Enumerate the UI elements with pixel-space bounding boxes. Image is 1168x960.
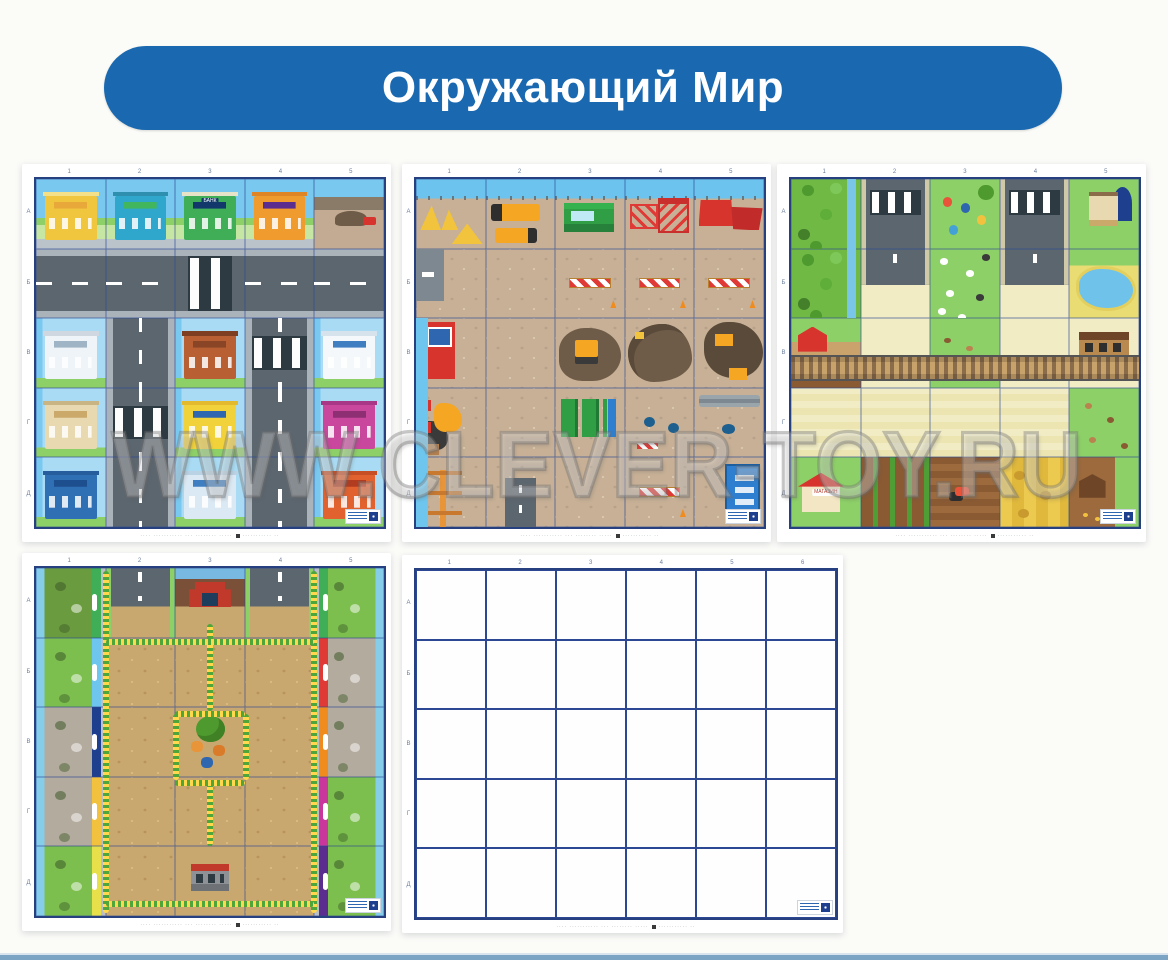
mat-cell (175, 388, 245, 458)
mat-cell: МАГАЗИН (791, 457, 861, 527)
column-label: 2 (518, 169, 521, 175)
product-sheet: Окружающий Мир 12345АБВГДБАНК···· ······… (0, 0, 1168, 960)
row-label: В (26, 739, 30, 745)
mat-cell (555, 249, 625, 319)
mat-cell (245, 249, 315, 319)
mat-cell (416, 570, 486, 640)
qr-code-icon (821, 903, 830, 912)
column-label: 2 (138, 558, 141, 564)
zoo-path (243, 714, 249, 780)
mat-cell (314, 707, 384, 777)
mat-cell (694, 388, 764, 458)
row-label: Г (782, 420, 785, 426)
brand-logo (1100, 509, 1136, 524)
mat-cell (1000, 179, 1070, 249)
mat-cell (1069, 249, 1139, 319)
mat-cell (791, 388, 861, 458)
mat-cell (36, 249, 106, 319)
mat-cell (314, 318, 384, 388)
column-label: 5 (729, 169, 732, 175)
mat-cell (416, 179, 486, 249)
column-labels: 123456 (414, 558, 838, 568)
playmat-village: 12345АБВГДМАГАЗИН···· ··········· ··· ··… (777, 164, 1146, 542)
mat-cell (625, 249, 695, 319)
caption-text: ··········· ·· (243, 533, 280, 539)
playmat-blank-grid: 123456АБВГД···· ··········· ··· ········… (402, 555, 843, 933)
row-label: Д (406, 882, 410, 888)
column-labels: 12345 (789, 167, 1141, 177)
mat-cell (696, 779, 766, 849)
row-label: Д (26, 880, 30, 886)
row-label: А (406, 600, 410, 606)
column-labels: 12345 (34, 556, 386, 566)
mat-cell (556, 640, 626, 710)
mat-cell (175, 457, 245, 527)
mat-cell (314, 179, 384, 249)
logo-text-lines (1103, 512, 1122, 521)
mat-cell (245, 568, 315, 638)
column-label: 2 (518, 560, 521, 566)
playmat-city: 12345АБВГДБАНК···· ··········· ··· ·····… (22, 164, 391, 542)
mat-cell (694, 179, 764, 249)
mat-cell (696, 640, 766, 710)
caption-text: ···· ··········· ··· ········ ····· (895, 533, 987, 539)
row-label: Г (407, 420, 410, 426)
mat-cell (416, 709, 486, 779)
bottom-strip (0, 953, 1168, 960)
mat-caption: ···· ··········· ··· ········ ··········… (34, 918, 386, 931)
mat-caption: ···· ··········· ··· ········ ··········… (414, 920, 838, 933)
column-label: 6 (801, 560, 804, 566)
mat-cell (791, 249, 861, 319)
mat-cell (766, 570, 836, 640)
brand-logo (725, 509, 761, 524)
mat-cell (245, 457, 315, 527)
building-sign: МАГАЗИН (812, 489, 839, 496)
mat-cell (245, 318, 315, 388)
qr-code-icon (369, 512, 378, 521)
logo-text-lines (728, 512, 747, 521)
mat-cell (556, 570, 626, 640)
mat-cell (694, 318, 764, 388)
qr-icon (236, 534, 240, 538)
row-label: А (781, 209, 785, 215)
mat-cell (106, 638, 176, 708)
mat-cell (1069, 179, 1139, 249)
mat-cell (36, 638, 106, 708)
mat-cell (36, 568, 106, 638)
mat-cell (625, 388, 695, 458)
mat-cell (106, 179, 176, 249)
mat-cell (861, 179, 931, 249)
mat-cell (106, 249, 176, 319)
mat-cell (106, 388, 176, 458)
mat-cell (486, 640, 556, 710)
page-title: Окружающий Мир (382, 63, 784, 113)
row-label: В (26, 350, 30, 356)
mat-cell (556, 779, 626, 849)
mat-cell (930, 388, 1000, 458)
row-labels: АБВГД (403, 568, 414, 920)
column-label: 3 (588, 169, 591, 175)
logo-text-lines (348, 512, 367, 521)
mat-cell (626, 779, 696, 849)
mat-cell (625, 179, 695, 249)
brand-logo (345, 509, 381, 524)
mat-cell (861, 457, 931, 527)
row-labels: АБВГД (23, 177, 34, 529)
mat-field (414, 568, 838, 920)
column-label: 5 (349, 558, 352, 564)
mat-cell (861, 388, 931, 458)
caption-text: ··········· ·· (998, 533, 1035, 539)
mat-field: БАНК (34, 177, 386, 529)
mat-cell (555, 388, 625, 458)
row-labels: АБВГД (403, 177, 414, 529)
qr-icon (616, 534, 620, 538)
zoo-path (173, 714, 179, 780)
mat-cell (1000, 249, 1070, 319)
title-banner: Окружающий Мир (104, 46, 1062, 130)
mat-field (414, 177, 766, 529)
brand-logo (797, 900, 833, 915)
railroad-track (791, 355, 1139, 381)
mat-cell (314, 638, 384, 708)
zoo-path (207, 784, 213, 847)
row-label: Б (27, 669, 31, 675)
mat-cell (861, 249, 931, 319)
mat-cell (555, 457, 625, 527)
mat-cell (625, 318, 695, 388)
column-label: 1 (448, 560, 451, 566)
mat-cell (555, 179, 625, 249)
mat-cell (245, 777, 315, 847)
column-labels: 12345 (34, 167, 386, 177)
mat-cell (696, 848, 766, 918)
mat-cell (314, 249, 384, 319)
qr-code-icon (1124, 512, 1133, 521)
column-label: 5 (349, 169, 352, 175)
column-label: 3 (963, 169, 966, 175)
mat-cell (486, 179, 556, 249)
row-labels: АБВГД (778, 177, 789, 529)
mat-cell (245, 388, 315, 458)
mat-cell (36, 707, 106, 777)
mat-cell (486, 388, 556, 458)
mat-cell (314, 777, 384, 847)
zoo-path (207, 624, 213, 711)
row-label: Д (26, 491, 30, 497)
mat-cell (930, 249, 1000, 319)
mat-cell (416, 249, 486, 319)
mat-cell (1000, 388, 1070, 458)
mat-cell (626, 709, 696, 779)
qr-icon (991, 534, 995, 538)
logo-text-lines (800, 903, 819, 912)
mat-cell (626, 640, 696, 710)
mat-cell (626, 848, 696, 918)
row-label: Б (782, 280, 786, 286)
mat-cell (245, 707, 315, 777)
row-label: В (781, 350, 785, 356)
mat-cell (175, 249, 245, 319)
row-label: Г (27, 809, 30, 815)
mat-cell (556, 709, 626, 779)
playmat-construction: 12345АБВГД···· ··········· ··· ········ … (402, 164, 771, 542)
row-label: Б (407, 671, 411, 677)
caption-text: ··········· ·· (659, 924, 696, 930)
mat-field (34, 566, 386, 918)
building-sign: БАНК (201, 198, 218, 205)
row-label: Б (27, 280, 31, 286)
playmat-zoo: 12345АБВГД···· ··········· ··· ········ … (22, 553, 391, 931)
mat-cell (36, 179, 106, 249)
column-label: 3 (208, 169, 211, 175)
row-label: В (406, 741, 410, 747)
zoo-path (311, 571, 317, 912)
zoo-path (106, 901, 315, 907)
row-label: Д (781, 491, 785, 497)
mat-cell (696, 570, 766, 640)
mat-cell (766, 779, 836, 849)
zoo-path (106, 639, 315, 645)
mat-field: МАГАЗИН (789, 177, 1141, 529)
mat-cell (314, 388, 384, 458)
mat-cell (314, 568, 384, 638)
mat-cell (1069, 388, 1139, 458)
mat-cell (36, 846, 106, 916)
mat-cell (106, 457, 176, 527)
column-label: 4 (659, 169, 662, 175)
column-labels: 12345 (414, 167, 766, 177)
mat-cell (106, 318, 176, 388)
column-label: 4 (1034, 169, 1037, 175)
mat-cell (930, 457, 1000, 527)
row-label: В (406, 350, 410, 356)
column-label: 1 (823, 169, 826, 175)
column-label: 4 (660, 560, 663, 566)
column-label: 1 (68, 169, 71, 175)
column-label: 1 (68, 558, 71, 564)
qr-icon (236, 923, 240, 927)
row-label: А (26, 209, 30, 215)
logo-text-lines (348, 901, 367, 910)
mat-cell (106, 777, 176, 847)
site-edge-road (416, 318, 428, 527)
qr-code-icon (749, 512, 758, 521)
mat-caption: ···· ··········· ··· ········ ··········… (789, 529, 1141, 542)
row-label: Б (407, 280, 411, 286)
column-label: 5 (730, 560, 733, 566)
caption-text: ··········· ·· (623, 533, 660, 539)
column-label: 5 (1104, 169, 1107, 175)
brand-logo (345, 898, 381, 913)
mat-caption: ···· ··········· ··· ········ ··········… (414, 529, 766, 542)
mat-cell (36, 318, 106, 388)
mat-cell (245, 179, 315, 249)
mat-cell (106, 568, 176, 638)
column-label: 3 (208, 558, 211, 564)
column-label: 2 (138, 169, 141, 175)
qr-code-icon (369, 901, 378, 910)
caption-text: ··········· ·· (243, 922, 280, 928)
row-label: Г (407, 811, 410, 817)
zoo-path (175, 780, 245, 786)
row-label: Г (27, 420, 30, 426)
mat-cell (696, 709, 766, 779)
column-label: 3 (589, 560, 592, 566)
mat-cell (694, 249, 764, 319)
mat-cell (416, 848, 486, 918)
row-labels: АБВГД (23, 566, 34, 918)
mat-cell (36, 457, 106, 527)
zoo-path (175, 711, 245, 717)
mat-cell (36, 388, 106, 458)
mat-cell (555, 318, 625, 388)
row-label: А (26, 598, 30, 604)
mat-cell (486, 848, 556, 918)
mat-cell (766, 709, 836, 779)
mat-caption: ···· ··········· ··· ········ ··········… (34, 529, 386, 542)
mat-cell (36, 777, 106, 847)
column-label: 4 (279, 558, 282, 564)
mat-cell (486, 709, 556, 779)
mat-cell (625, 457, 695, 527)
column-label: 1 (448, 169, 451, 175)
mat-cell (245, 638, 315, 708)
mat-cell: БАНК (175, 179, 245, 249)
caption-text: ···· ··········· ··· ········ ····· (520, 533, 612, 539)
mat-cell (175, 318, 245, 388)
caption-text: ···· ··········· ··· ········ ····· (556, 924, 648, 930)
zoo-path (103, 571, 109, 912)
mat-cell (1000, 457, 1070, 527)
mat-cell (106, 707, 176, 777)
mat-cell (556, 848, 626, 918)
row-label: Д (406, 491, 410, 497)
column-label: 2 (893, 169, 896, 175)
row-label: А (406, 209, 410, 215)
mat-cell (486, 457, 556, 527)
mat-cell (486, 570, 556, 640)
mat-cell (626, 570, 696, 640)
caption-text: ···· ··········· ··· ········ ····· (140, 922, 232, 928)
mat-cell (486, 318, 556, 388)
caption-text: ···· ··········· ··· ········ ····· (140, 533, 232, 539)
mat-cell (486, 249, 556, 319)
mat-cell (486, 779, 556, 849)
qr-icon (652, 925, 656, 929)
column-label: 4 (279, 169, 282, 175)
mat-cell (791, 179, 861, 249)
mat-cell (175, 707, 245, 777)
mat-cell (930, 179, 1000, 249)
mat-cell (416, 640, 486, 710)
mat-cell (766, 640, 836, 710)
mat-cell (416, 779, 486, 849)
